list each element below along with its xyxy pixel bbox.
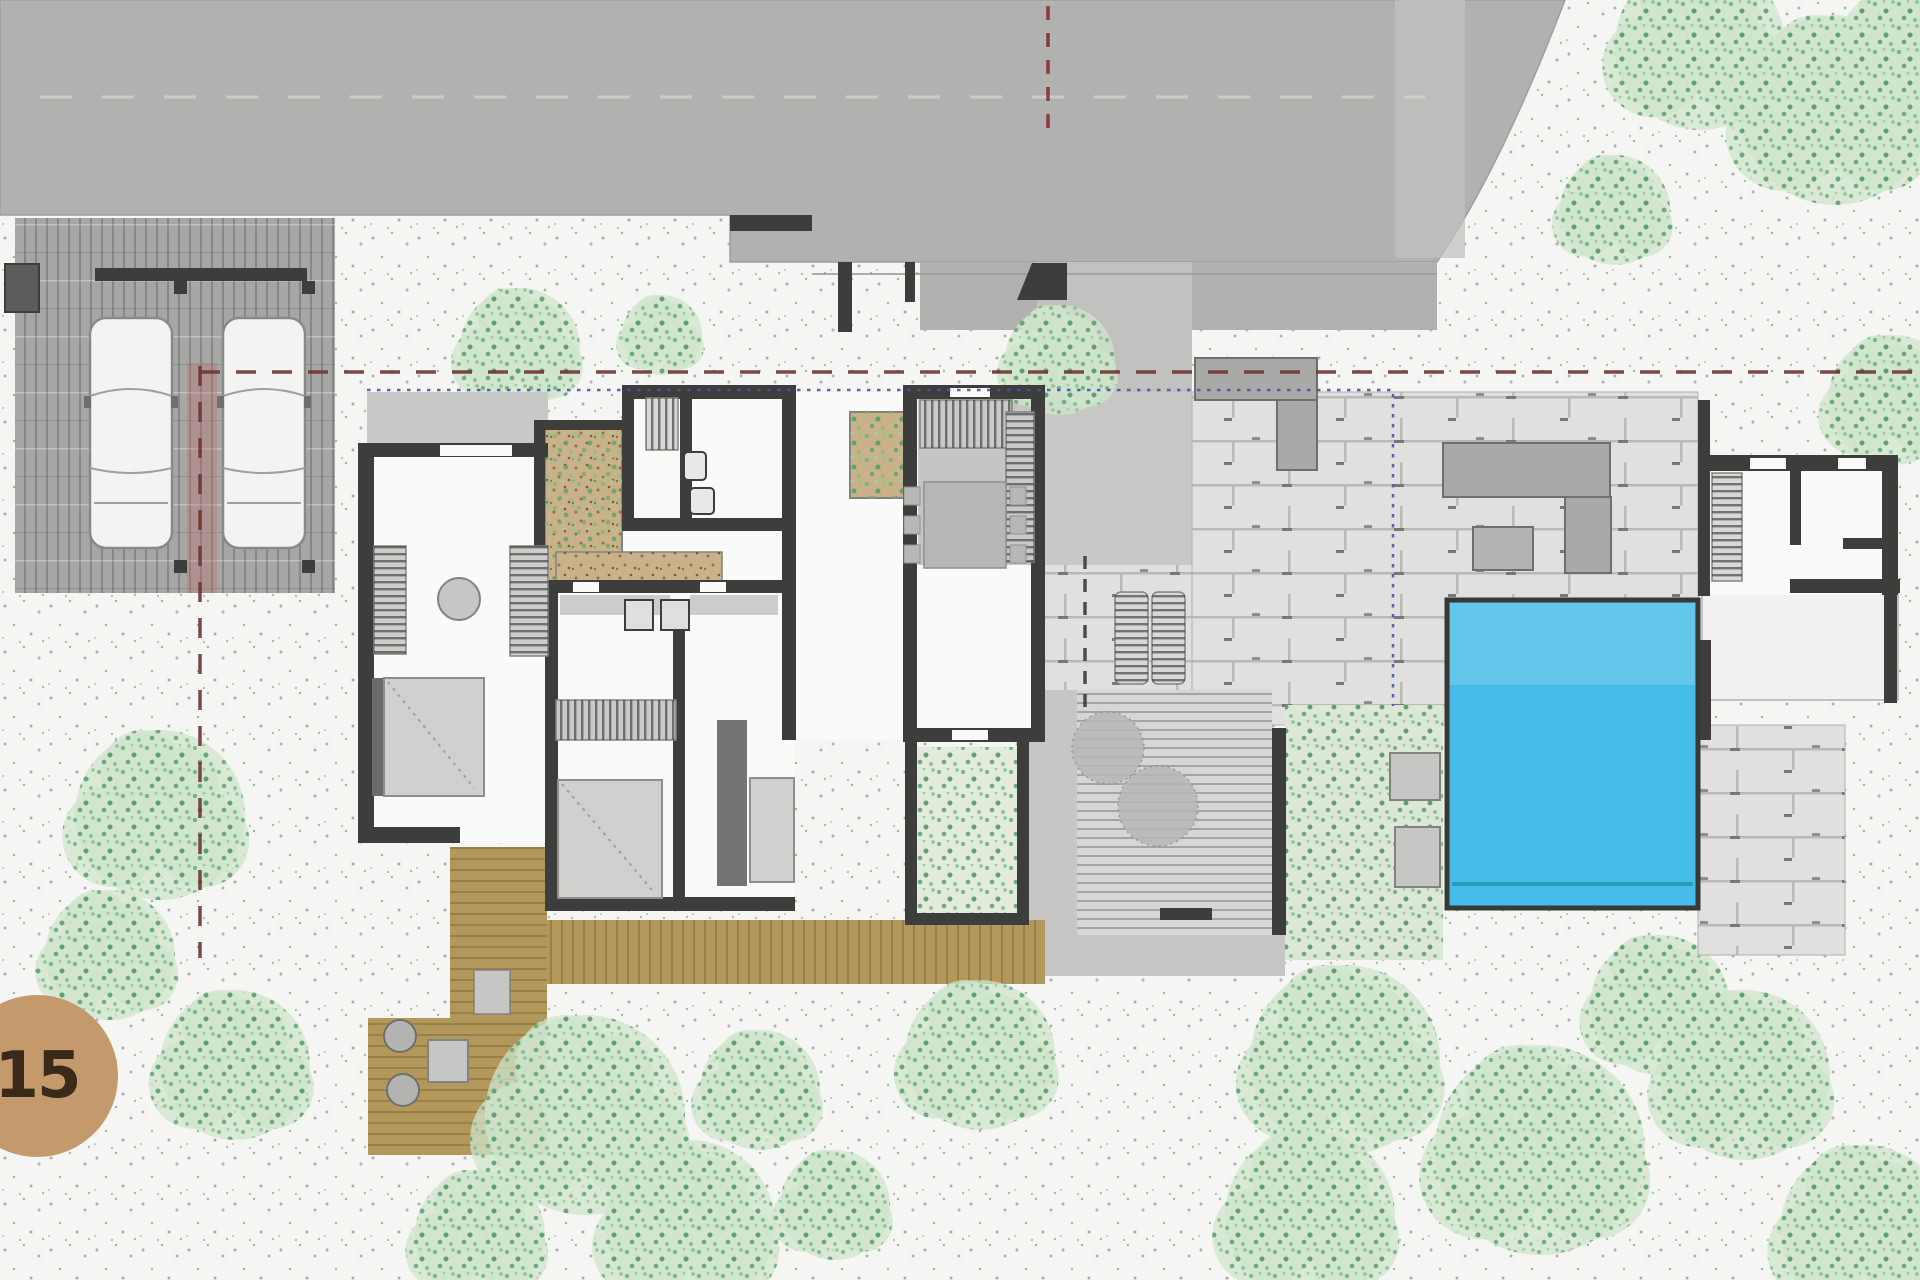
bed-north-of-living-foliage-4 [1049, 316, 1099, 366]
carport-beam [95, 268, 307, 281]
front-terrace [367, 392, 548, 443]
guest-wall-north [1698, 455, 1898, 471]
parked-car-1 [84, 318, 178, 548]
toilet-1 [684, 452, 706, 480]
wall-bath-top [622, 385, 795, 399]
east-terrace [1045, 392, 1192, 565]
bush-over-deck-1-foliage-4 [565, 1035, 655, 1125]
guest-terrace-wall [1698, 400, 1710, 596]
wall-courtyard-west [905, 742, 917, 925]
wall-bath-bottom [622, 518, 795, 531]
road-driveway-strip [1395, 0, 1465, 258]
guest-wall-niche [1843, 538, 1898, 549]
wall-courtyard-east [1017, 742, 1029, 925]
layer-pool [1447, 600, 1698, 908]
dining-chair-1 [904, 487, 920, 505]
bush-left-2-foliage-4 [97, 903, 156, 962]
parked-car-2 [217, 318, 311, 548]
deck-pouf-1 [384, 1020, 416, 1052]
wall-chunk-south [1160, 908, 1212, 920]
wall-bed-front-top [534, 420, 633, 430]
bush-left-1-foliage-4 [143, 747, 220, 824]
wall-slat-deck-east [1272, 728, 1286, 935]
bush-over-deck-2-foliage-4 [673, 1157, 750, 1234]
wall-bath-west [622, 385, 634, 531]
guest-patio-wall-west [1700, 640, 1711, 740]
dining-chair-6 [1010, 545, 1026, 563]
parked-car-2-mirror-right [304, 396, 311, 408]
site-plan-stage: 15 [0, 0, 1920, 1280]
foyer-round-table [438, 578, 480, 620]
parked-car-1-mirror-left [84, 396, 91, 408]
bush-left-3-foliage-4 [220, 1005, 288, 1073]
garden-step-1 [1390, 753, 1440, 800]
dining-chair-2 [904, 516, 920, 534]
sun-lounger-2-slats [1152, 592, 1185, 684]
dining-chair-4 [1010, 487, 1026, 505]
pool-shallow-step [1450, 603, 1695, 685]
guest-patio [1702, 593, 1898, 700]
bush-top-right-4-foliage-4 [1604, 166, 1654, 216]
bush-bottom-right-6-foliage-4 [1646, 949, 1709, 1012]
carport-post-2 [302, 281, 315, 294]
guest-patio-wall-east [1884, 593, 1897, 703]
bed2-slat-bench-louvers [556, 700, 676, 740]
sink-1 [625, 600, 653, 630]
guest-wall-divider [1790, 471, 1801, 545]
bush-bottom-right-1-foliage-4 [1326, 984, 1412, 1070]
west-gray-strip [1045, 690, 1077, 920]
bedroom3-wardrobe-band [690, 595, 778, 615]
toilet-2 [690, 488, 714, 514]
wardrobe-foyer-right-louvers [510, 546, 548, 656]
bed3 [750, 778, 794, 882]
lot-number-text: 15 [0, 1039, 80, 1113]
guest-door-1 [1750, 458, 1786, 469]
carport-post-3 [174, 560, 187, 573]
bush-above-house-1-foliage-4 [508, 300, 562, 354]
bush-over-deck-3-foliage-4 [467, 1183, 526, 1242]
utility-box [5, 264, 39, 312]
outdoor-sofa-2a [1443, 443, 1610, 497]
patio-bed-west-green [850, 412, 905, 498]
wood-deck-band-planks [547, 920, 1045, 984]
parked-car-2-mirror-left [217, 396, 224, 408]
wall-bedrooms-bottom [545, 897, 795, 911]
sun-lounger-1-slats [1115, 592, 1148, 684]
bush-bottom-center-3-foliage-4 [748, 1042, 802, 1096]
guest-louver-closet-slats [1712, 473, 1742, 581]
guest-wall-east [1882, 455, 1898, 595]
layer-carport [5, 218, 335, 593]
wall-east-corridor [782, 385, 796, 740]
bush-bottom-right-3-foliage-4 [1293, 1147, 1370, 1224]
wardrobe-foyer-left-louvers [374, 546, 406, 654]
wall-west [358, 443, 374, 843]
door-bedroom-2 [573, 582, 599, 592]
dining-chair-3 [904, 545, 920, 563]
carport-post-4 [302, 560, 315, 573]
carport-post-1 [174, 281, 187, 294]
shower-louvers [646, 398, 678, 450]
green-courtyard-dots [917, 747, 1017, 913]
bush-bottom-center-1-foliage-4 [824, 1161, 874, 1211]
sink-2 [661, 600, 689, 630]
deck-seat [474, 970, 510, 1014]
carport-red-strip [187, 363, 217, 593]
bush-above-house-2-foliage-4 [654, 303, 690, 339]
outdoor-coffee-table [1473, 527, 1533, 570]
guest-wall-south [1790, 579, 1900, 593]
guest-door-2 [1838, 458, 1866, 469]
bedroom3-closet [717, 720, 747, 886]
bush-bottom-right-4-foliage-4 [1728, 1007, 1805, 1084]
bush-bottom-center-2-foliage-4 [965, 995, 1033, 1063]
deck-pouf-2 [387, 1074, 419, 1106]
door-bedroom-3 [700, 582, 726, 592]
dining-chair-5 [1010, 516, 1026, 534]
parked-car-1-mirror-right [171, 396, 178, 408]
wall-courtyard-south [905, 913, 1029, 925]
door-entry [440, 445, 512, 456]
tree-canopy-2 [1118, 766, 1198, 846]
tree-canopy-1 [1072, 712, 1144, 784]
deck-table [428, 1040, 468, 1082]
bush-bottom-right-2-foliage-4 [1519, 1066, 1614, 1161]
bed1-headboard [372, 678, 384, 796]
gravel-strip-inner-dots [556, 552, 722, 582]
garden-step-2 [1395, 827, 1440, 887]
outdoor-sofa-1b [1277, 400, 1317, 470]
site-plan-drawing [0, 0, 1920, 1280]
wall-left-bottom [358, 827, 460, 843]
southeast-pavers [1698, 725, 1845, 955]
parked-car-1-body [90, 318, 172, 548]
door-living-south [952, 730, 988, 740]
outdoor-sofa-2b [1565, 497, 1611, 573]
parked-car-2-body [223, 318, 305, 548]
gate-wall-1 [730, 215, 812, 231]
gate-wall-2 [838, 262, 852, 332]
gate-post [905, 262, 915, 302]
dining-table [924, 482, 1006, 568]
kitchen-island-louvers [920, 400, 1012, 448]
wall-bedroom-divider [673, 614, 685, 904]
outdoor-sofa-1a [1195, 358, 1317, 400]
